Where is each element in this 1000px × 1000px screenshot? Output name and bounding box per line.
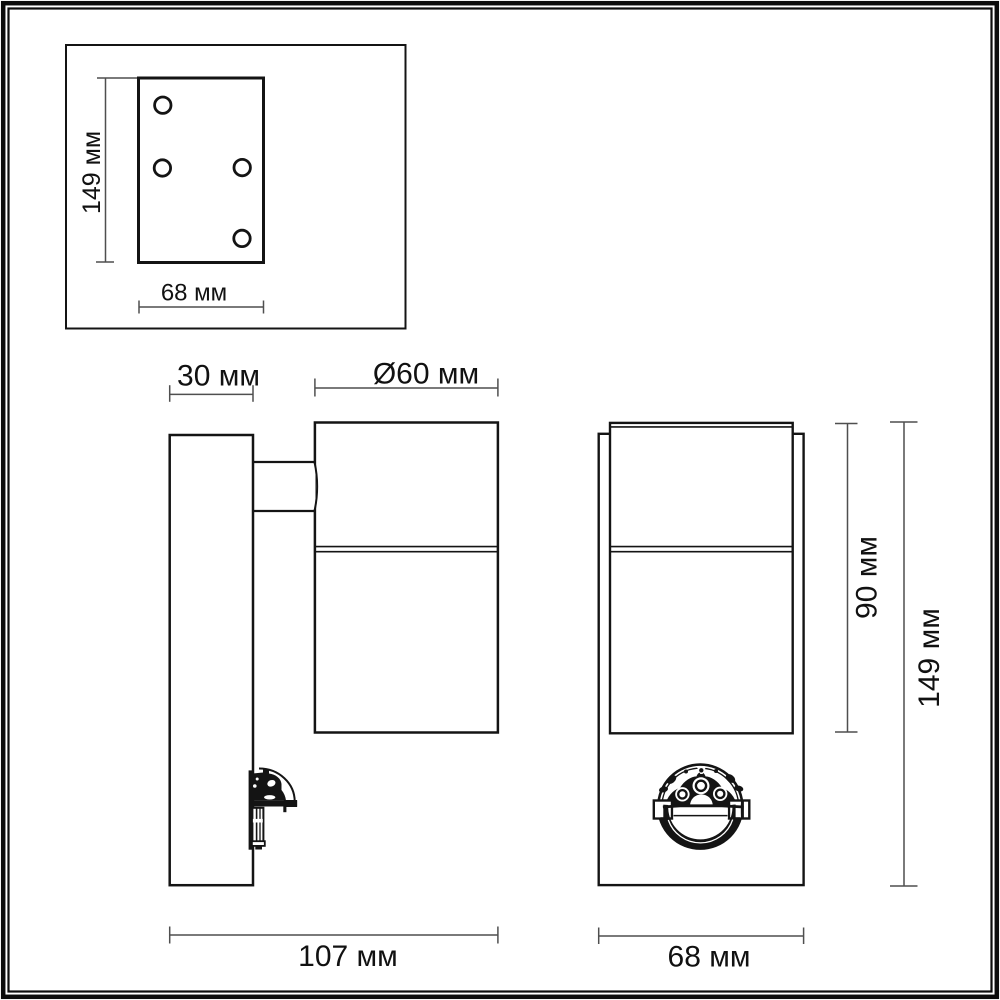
svg-text:68 мм: 68 мм: [668, 941, 751, 974]
svg-text:90 мм: 90 мм: [851, 536, 884, 619]
svg-text:Ø60 мм: Ø60 мм: [373, 357, 479, 390]
svg-text:107 мм: 107 мм: [298, 940, 398, 973]
svg-text:149 мм: 149 мм: [78, 131, 106, 214]
svg-text:30 мм: 30 мм: [177, 360, 260, 393]
svg-text:149 мм: 149 мм: [913, 608, 946, 708]
svg-text:68 мм: 68 мм: [161, 280, 227, 307]
